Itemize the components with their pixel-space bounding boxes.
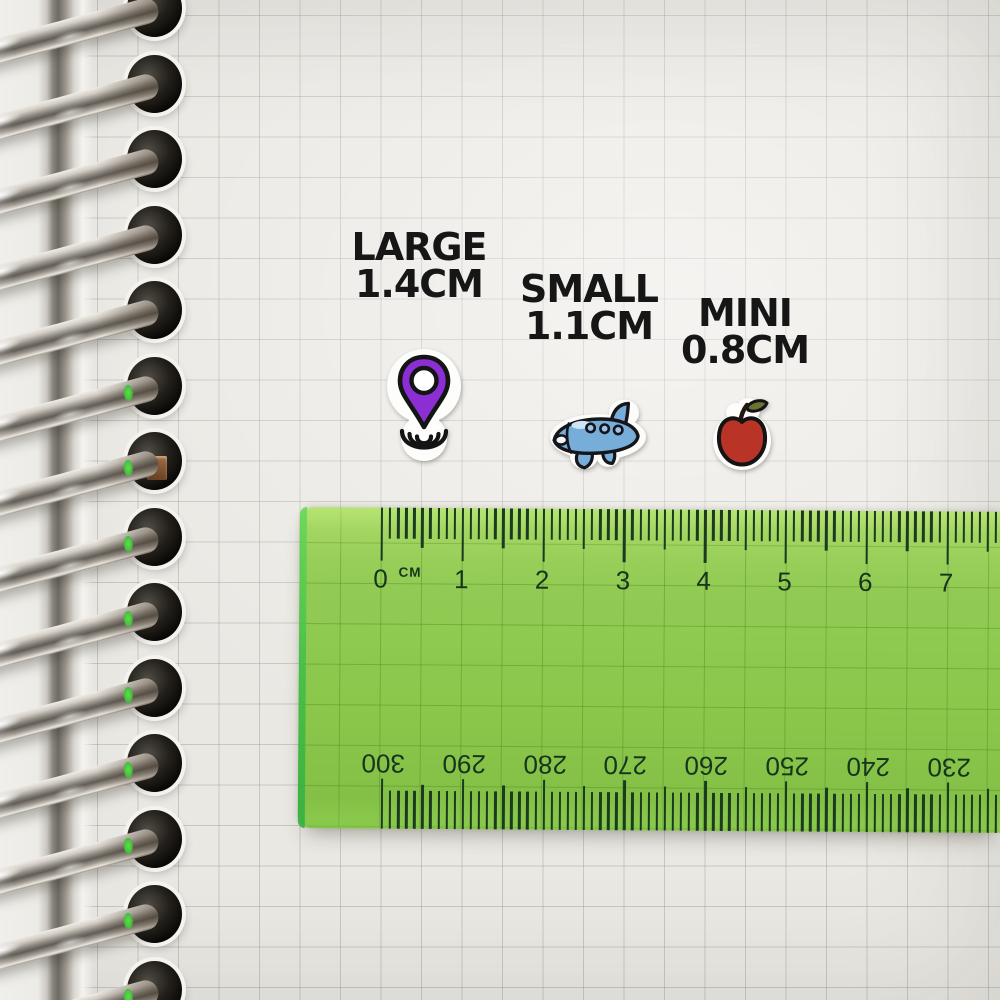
ruler-tick <box>429 508 432 539</box>
ruler-tick <box>752 793 755 831</box>
ruler-tick <box>421 508 424 548</box>
ruler-tick <box>857 511 860 542</box>
ruler-tick <box>445 508 448 539</box>
ruler-tick <box>744 787 747 831</box>
ruler-tick <box>890 794 893 832</box>
ruler-number: 240 <box>846 751 890 782</box>
ruler-tick <box>550 792 553 830</box>
ruler-tick <box>979 795 982 833</box>
ruler-tick <box>987 512 990 552</box>
ring-reflection <box>123 460 133 476</box>
ruler-tick <box>704 510 707 563</box>
ruler-tick <box>559 509 562 540</box>
ruler-tick <box>962 795 965 833</box>
ruler-tick <box>510 508 513 539</box>
ruler-tick <box>922 794 925 832</box>
ruler-tick <box>890 511 893 542</box>
ruler-tick <box>389 508 392 539</box>
ruler-tick <box>696 793 699 831</box>
ruler-tick <box>971 795 974 833</box>
ruler-tick <box>559 792 562 830</box>
label-large-name: LARGE <box>351 229 486 266</box>
label-mini-size: 0.8CM <box>681 332 809 369</box>
ruler-tick <box>817 511 820 542</box>
ruler-tick <box>575 509 578 540</box>
ruler-number: 260 <box>685 750 729 781</box>
location-pin-icon <box>383 346 465 462</box>
ruler-tick <box>445 791 448 829</box>
ring-reflection <box>123 535 133 551</box>
ruler-tick <box>534 792 537 830</box>
ruler-tick <box>761 510 764 541</box>
ruler-tick <box>486 791 489 829</box>
ruler-tick <box>461 508 464 561</box>
ruler-tick <box>567 509 570 540</box>
ruler-tick <box>841 511 844 542</box>
ruler-tick <box>518 509 521 540</box>
label-large: LARGE 1.4CM <box>351 229 486 303</box>
ruler-tick <box>849 794 852 832</box>
label-small-name: SMALL <box>520 271 658 308</box>
ruler-tick <box>639 792 642 830</box>
ruler-number: 7 <box>939 567 954 598</box>
ruler-tick <box>874 794 877 832</box>
ruler-tick <box>938 794 941 832</box>
ruler-tick <box>623 509 626 562</box>
ruler-tick <box>825 788 828 832</box>
ruler-tick <box>874 511 877 542</box>
ruler-number: 3 <box>616 565 631 596</box>
ruler-tick <box>760 793 763 831</box>
ruler-tick <box>865 511 868 564</box>
ruler-tick <box>825 511 828 551</box>
ruler-tick <box>946 783 949 833</box>
ruler-tick <box>680 793 683 831</box>
ruler-tick <box>922 511 925 542</box>
ruler-tick <box>664 787 667 831</box>
ruler-tick <box>963 512 966 543</box>
ruler-tick <box>413 508 416 539</box>
ruler-tick <box>712 793 715 831</box>
ring-reflection <box>123 837 133 853</box>
ruler-tick <box>720 793 723 831</box>
ruler-tick <box>381 779 384 829</box>
ruler-tick <box>777 510 780 541</box>
ruler-tick <box>607 509 610 540</box>
ruler-tick <box>736 793 739 831</box>
ruler-tick <box>639 509 642 540</box>
ruler-tick <box>470 791 473 829</box>
ruler-tick <box>542 780 545 830</box>
ruler-number: 290 <box>442 748 486 779</box>
ruler-tick <box>470 508 473 539</box>
ruler-tick <box>946 512 949 565</box>
ruler-tick <box>882 511 885 542</box>
ruler-tick <box>817 794 820 832</box>
ruler-tick <box>437 508 440 539</box>
ruler-tick <box>647 509 650 540</box>
ruler-tick <box>898 511 901 542</box>
ruler-tick <box>478 791 481 829</box>
ruler-tick <box>769 793 772 831</box>
ruler-tick <box>421 785 424 829</box>
ruler-tick <box>550 509 553 540</box>
ruler-tick <box>599 509 602 540</box>
ruler-tick <box>785 510 788 563</box>
ruler-tick <box>453 791 456 829</box>
ruler-number: 0 <box>373 564 388 595</box>
ruler-tick <box>841 794 844 832</box>
ruler-tick <box>583 786 586 830</box>
ruler-tick <box>397 791 400 829</box>
ring-reflection <box>123 988 133 1000</box>
apple-icon <box>707 397 777 470</box>
ruler: 01234567 300290280270260250240230 CM <box>298 507 1000 833</box>
ring-reflection <box>123 913 133 929</box>
ring-reflection <box>123 611 133 627</box>
ruler-tick <box>405 791 408 829</box>
ruler-number: 300 <box>361 747 405 778</box>
apple-leaf <box>747 401 767 411</box>
ruler-tick <box>631 792 634 830</box>
ruler-number: 250 <box>765 750 809 781</box>
ruler-tick <box>599 792 602 830</box>
ruler-tick <box>995 795 998 833</box>
ruler-top-scale-cm: 01234567 <box>300 507 1000 512</box>
ruler-tick <box>655 792 658 830</box>
ruler-tick <box>833 511 836 542</box>
ruler-tick <box>381 508 384 561</box>
ring-reflection <box>123 686 133 702</box>
ruler-tick <box>615 792 618 830</box>
ruler-tick <box>914 511 917 542</box>
ruler-tick <box>906 788 909 832</box>
ruler-tick <box>518 792 521 830</box>
ruler-tick <box>429 791 432 829</box>
ruler-tick <box>809 794 812 832</box>
ruler-tick <box>462 779 465 829</box>
label-mini: MINI 0.8CM <box>681 295 809 369</box>
ruler-tick <box>809 511 812 542</box>
ruler-number: 2 <box>535 565 550 596</box>
plane-nose-window <box>555 435 567 445</box>
ruler-left-edge <box>298 507 307 828</box>
ruler-tick <box>752 510 755 541</box>
ruler-tick <box>882 794 885 832</box>
ruler-tick <box>785 781 788 831</box>
ruler-tick <box>987 789 990 833</box>
ruler-tick <box>494 508 497 539</box>
ruler-number: 230 <box>927 751 971 782</box>
ruler-tick <box>575 792 578 830</box>
label-mini-name: MINI <box>681 295 809 332</box>
ruler-tick <box>696 510 699 541</box>
ruler-tick <box>801 510 804 541</box>
ruler-tick <box>849 511 852 542</box>
ruler-number: 6 <box>858 567 873 598</box>
ruler-tick <box>413 791 416 829</box>
ruler-tick <box>647 792 650 830</box>
ruler-tick <box>938 511 941 542</box>
ruler-tick <box>688 510 691 541</box>
ruler-tick <box>833 794 836 832</box>
ruler-tick <box>680 510 683 541</box>
ruler-tick <box>801 794 804 832</box>
ruler-tick <box>526 509 529 540</box>
ruler-number: 5 <box>777 566 792 597</box>
ruler-tick <box>979 512 982 543</box>
ruler-tick <box>478 508 481 539</box>
ruler-tick <box>995 512 998 543</box>
ruler-tick <box>405 508 408 539</box>
ruler-tick <box>728 793 731 831</box>
ruler-tick <box>857 794 860 832</box>
ruler-tick <box>494 791 497 829</box>
ruler-tick <box>777 793 780 831</box>
ruler-tick <box>591 792 594 830</box>
ruler-tick <box>688 793 691 831</box>
ruler-tick <box>486 508 489 539</box>
ruler-tick <box>615 509 618 540</box>
ruler-number: 4 <box>696 566 711 597</box>
ruler-tick <box>793 793 796 831</box>
ruler-tick <box>744 510 747 550</box>
ruler-tick <box>720 510 723 541</box>
ruler-unit-label: CM <box>398 565 421 580</box>
ruler-tick <box>397 508 400 539</box>
ring-reflection <box>123 762 133 778</box>
airplane-icon <box>545 398 653 470</box>
ruler-tick <box>453 508 456 539</box>
notebook-photo: LARGE 1.4CM SMALL 1.1CM MINI 0.8CM <box>0 0 1000 1000</box>
ruler-tick <box>607 792 610 830</box>
pin-center-dot <box>412 368 437 393</box>
ruler-tick <box>526 792 529 830</box>
ruler-tick <box>704 781 707 831</box>
ruler-tick <box>930 794 933 832</box>
ruler-tick <box>672 793 675 831</box>
ruler-tick <box>672 510 675 541</box>
ruler-tick <box>534 509 537 540</box>
ruler-tick <box>898 794 901 832</box>
ruler-number: 280 <box>523 749 567 780</box>
ruler-tick <box>971 512 974 543</box>
ruler-tick <box>567 792 570 830</box>
apple-body <box>719 418 765 464</box>
label-small-size: 1.1CM <box>520 308 658 345</box>
ruler-tick <box>631 509 634 540</box>
ruler-tick <box>769 510 772 541</box>
ring-reflection <box>123 384 133 400</box>
ruler-tick <box>623 780 626 830</box>
ruler-tick <box>655 509 658 540</box>
ruler-tick <box>914 794 917 832</box>
ruler-tick <box>389 791 392 829</box>
ruler-tick <box>583 509 586 549</box>
ruler-tick <box>906 511 909 551</box>
ruler-tick <box>954 795 957 833</box>
label-small: SMALL 1.1CM <box>520 271 658 345</box>
ruler-number: 270 <box>604 749 648 780</box>
ruler-tick <box>954 512 957 543</box>
ruler-tick <box>664 510 667 550</box>
ruler-tick <box>793 510 796 541</box>
ruler-tick <box>736 510 739 541</box>
ruler-tick <box>591 509 594 540</box>
ruler-tick <box>866 782 869 832</box>
ruler-tick <box>712 510 715 541</box>
ruler-tick <box>502 508 505 548</box>
ruler-tick <box>510 791 513 829</box>
ruler-tick <box>930 511 933 542</box>
label-large-size: 1.4CM <box>351 266 486 303</box>
ruler-tick <box>728 510 731 541</box>
ruler-tick <box>437 791 440 829</box>
ruler-tick <box>502 785 505 829</box>
ruler-tick <box>542 509 545 562</box>
ruler-number: 1 <box>454 564 469 595</box>
